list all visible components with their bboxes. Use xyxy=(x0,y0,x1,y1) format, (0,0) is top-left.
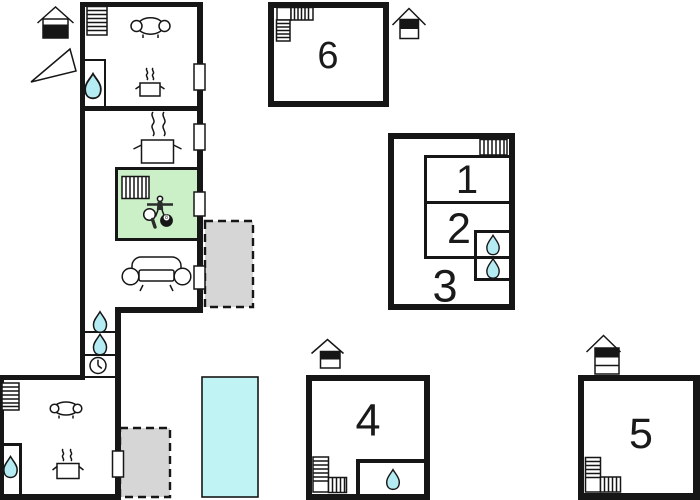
house-icon xyxy=(38,7,74,38)
water-drop-icon xyxy=(93,312,106,332)
sofa-icon xyxy=(50,402,82,419)
water-drop-icon xyxy=(387,470,400,490)
radiator-icon xyxy=(122,177,149,199)
foosball-icon xyxy=(157,202,163,210)
room-label-5: 5 xyxy=(629,410,653,458)
door-opening xyxy=(194,266,205,289)
clock-icon xyxy=(90,358,106,374)
floor-plan: 8 1 2 3 4 5 6 xyxy=(0,0,700,500)
door-opening xyxy=(113,451,124,477)
table-tennis-icon xyxy=(153,220,156,228)
billiard-ball-number: 8 xyxy=(165,215,168,221)
north-arrow-icon xyxy=(31,49,76,82)
foosball-icon xyxy=(157,196,162,201)
room-label-4: 4 xyxy=(355,395,380,446)
water-drop-icon xyxy=(93,334,106,354)
door-opening xyxy=(194,192,205,216)
sofa-icon xyxy=(131,18,170,38)
room-label-3: 3 xyxy=(432,261,457,312)
stairs-icon xyxy=(586,458,621,493)
billiard-ball-icon: 8 xyxy=(160,214,173,227)
water-drop-icon xyxy=(487,259,499,278)
room-label-2: 2 xyxy=(447,205,471,253)
stairs-icon xyxy=(313,457,347,493)
radiator-icon xyxy=(480,140,507,156)
stairs-icon xyxy=(2,383,19,410)
stove-icon xyxy=(136,68,165,96)
water-drop-icon xyxy=(4,457,17,478)
stairs-icon xyxy=(277,8,314,42)
door-opening xyxy=(194,64,205,90)
sofa-icon xyxy=(122,257,191,291)
water-drop-icon xyxy=(85,74,101,99)
room-label-1: 1 xyxy=(456,158,478,202)
main-building-walls xyxy=(0,2,203,500)
room-label-6: 6 xyxy=(317,35,338,77)
house-icon xyxy=(393,9,426,39)
swimming-pool xyxy=(202,377,258,497)
house-icon xyxy=(312,340,344,369)
stove-icon xyxy=(53,449,84,479)
water-drop-icon xyxy=(487,235,499,254)
terrace xyxy=(120,428,170,497)
room-labels: 1 2 3 4 5 6 xyxy=(317,35,653,458)
terrace xyxy=(205,221,253,307)
house-icon xyxy=(587,336,621,375)
floor-plan-canvas: 8 1 2 3 4 5 6 xyxy=(0,0,700,500)
radiator-icon xyxy=(87,7,107,36)
stove-icon xyxy=(134,112,182,163)
door-opening xyxy=(194,124,205,150)
